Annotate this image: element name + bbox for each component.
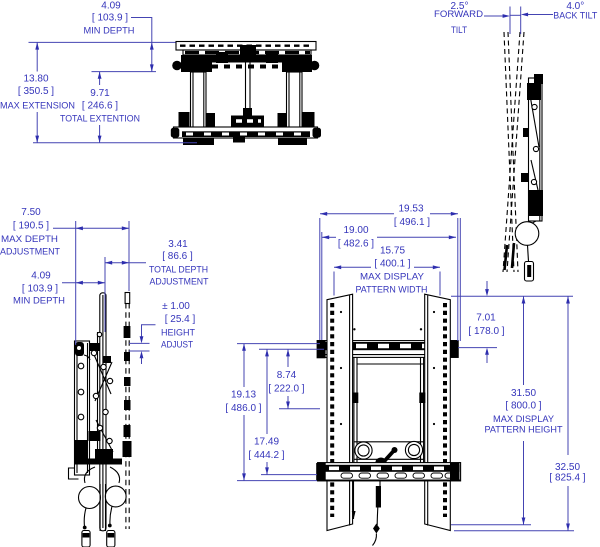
svg-text:[ 444.2 ]: [ 444.2 ] [248, 450, 284, 461]
svg-text:MIN DEPTH: MIN DEPTH [13, 296, 65, 306]
svg-text:ADJUSTMENT: ADJUSTMENT [150, 277, 209, 287]
svg-text:9.71: 9.71 [90, 88, 110, 99]
svg-text:BACK TILT: BACK TILT [553, 11, 597, 21]
svg-text:TILT: TILT [451, 25, 467, 35]
svg-text:3.41: 3.41 [168, 239, 188, 250]
svg-text:19.13: 19.13 [231, 390, 256, 401]
svg-text:[ 825.4 ]: [ 825.4 ] [549, 473, 585, 484]
svg-text:[ 190.5 ]: [ 190.5 ] [13, 221, 49, 232]
svg-text:13.80: 13.80 [23, 74, 48, 85]
svg-text:[ 222.0 ]: [ 222.0 ] [268, 384, 304, 395]
svg-text:19.53: 19.53 [398, 204, 423, 215]
svg-text:MAX DISPLAY: MAX DISPLAY [493, 414, 554, 424]
svg-text:[ 800.0 ]: [ 800.0 ] [505, 401, 541, 412]
svg-text:MAX DISPLAY: MAX DISPLAY [360, 272, 424, 282]
svg-text:PATTERN HEIGHT: PATTERN HEIGHT [485, 425, 563, 435]
svg-text:17.49: 17.49 [254, 437, 279, 448]
svg-text:MAX DEPTH: MAX DEPTH [1, 234, 58, 244]
svg-text:7.01: 7.01 [476, 313, 496, 324]
svg-text:7.50: 7.50 [21, 207, 41, 218]
svg-text:[ 350.5 ]: [ 350.5 ] [18, 86, 54, 97]
svg-text:[ 25.4 ]: [ 25.4 ] [165, 314, 196, 325]
svg-text:TOTAL EXTENTION: TOTAL EXTENTION [60, 114, 140, 124]
svg-text:MAX EXTENSION: MAX EXTENSION [0, 101, 75, 111]
svg-text:4.09: 4.09 [101, 1, 121, 12]
svg-text:4.09: 4.09 [31, 271, 51, 282]
svg-text:± 1.00: ± 1.00 [162, 301, 190, 312]
svg-text:31.50: 31.50 [511, 388, 536, 399]
svg-text:[ 86.6 ]: [ 86.6 ] [162, 251, 193, 262]
svg-text:[ 496.1 ]: [ 496.1 ] [394, 217, 430, 228]
svg-text:19.00: 19.00 [343, 225, 368, 236]
svg-text:15.75: 15.75 [380, 246, 405, 257]
svg-text:[ 103.9 ]: [ 103.9 ] [92, 13, 128, 24]
svg-text:HEIGHT: HEIGHT [161, 328, 195, 338]
svg-text:[ 246.6 ]: [ 246.6 ] [82, 101, 118, 112]
svg-text:MIN DEPTH: MIN DEPTH [84, 26, 135, 36]
svg-text:32.50: 32.50 [555, 462, 580, 473]
svg-text:[ 486.0 ]: [ 486.0 ] [225, 403, 261, 414]
svg-text:[ 482.6 ]: [ 482.6 ] [338, 239, 374, 250]
svg-text:8.74: 8.74 [277, 370, 297, 381]
svg-text:[ 400.1 ]: [ 400.1 ] [374, 259, 410, 270]
svg-text:[ 178.0 ]: [ 178.0 ] [468, 326, 504, 337]
svg-text:FORWARD: FORWARD [434, 9, 483, 19]
svg-text:PATTERN WIDTH: PATTERN WIDTH [356, 285, 428, 295]
svg-text:TOTAL DEPTH: TOTAL DEPTH [149, 265, 208, 275]
svg-text:[ 103.9 ]: [ 103.9 ] [22, 284, 58, 295]
svg-text:ADJUST: ADJUST [161, 340, 193, 350]
svg-text:ADJUSTMENT: ADJUSTMENT [0, 247, 60, 257]
